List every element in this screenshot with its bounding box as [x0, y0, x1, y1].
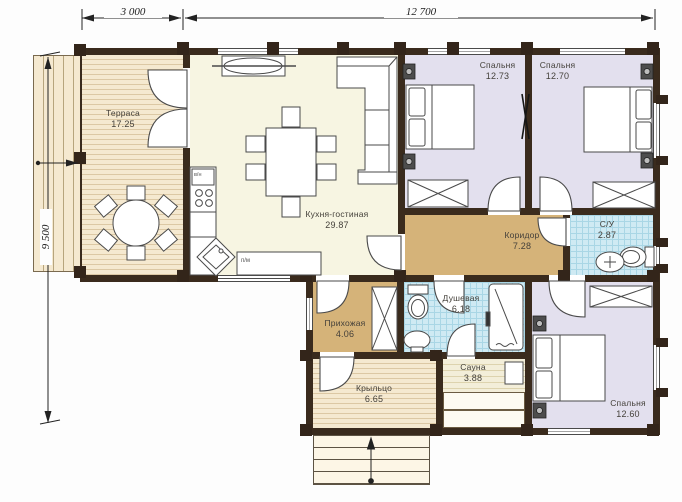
label-hallway: Прихожая4.06	[310, 318, 380, 341]
log-post	[521, 42, 533, 55]
window-bedroom2	[560, 48, 625, 55]
sauna-bench-lower	[443, 410, 525, 428]
log-post	[521, 424, 533, 436]
opening-wc-door	[563, 218, 570, 246]
log-post	[267, 42, 279, 55]
opening-hallway-door	[316, 275, 349, 282]
log-post	[177, 42, 189, 55]
log-post	[394, 42, 406, 55]
opening-sauna-door	[447, 352, 475, 359]
log-post	[74, 266, 86, 278]
floor-plan: 3 000 12 700 9 500 Терраса17.25 Кухня-го…	[0, 0, 682, 502]
log-post	[430, 424, 442, 436]
log-post	[647, 424, 659, 436]
log-post	[300, 270, 312, 282]
label-porch: Крыльцо6.65	[339, 383, 409, 406]
wall-shower-bedroom3	[525, 282, 532, 435]
dim-12700: 12 700	[384, 6, 458, 18]
log-post	[74, 44, 86, 56]
label-shower: Душевая6.18	[426, 293, 496, 316]
label-water-heater: в/н	[194, 172, 202, 178]
label-terrace: Терраса17.25	[92, 108, 154, 131]
dim-3000: 3 000	[104, 6, 162, 18]
label-kitchen: Кухня-гостиная29.87	[287, 209, 387, 232]
log-post	[177, 270, 189, 282]
log-end-nub	[656, 238, 668, 247]
label-sauna: Сауна3.88	[438, 362, 508, 385]
log-end-nub	[656, 264, 668, 273]
window-bedroom1	[428, 48, 490, 55]
log-end-nub	[656, 156, 668, 165]
log-end-nub	[656, 338, 668, 347]
label-bedroom3: Спальня12.60	[593, 398, 663, 421]
opening-bedroom1-door	[488, 208, 520, 215]
wall-hall-shower	[397, 282, 404, 359]
room-terrace	[82, 55, 183, 275]
log-post	[558, 270, 570, 282]
wall-bottom	[306, 428, 660, 435]
log-end-nub	[656, 388, 668, 397]
window-bedroom3-south	[548, 428, 590, 435]
sauna-bench-upper	[443, 392, 525, 410]
log-post	[447, 42, 459, 55]
opening-shower-door	[434, 275, 464, 282]
opening-porch-door	[320, 352, 354, 359]
dim-9500: 9 500	[40, 209, 52, 265]
log-post	[74, 152, 86, 164]
opening-french-door	[183, 68, 190, 148]
window-bedroom3-east	[653, 345, 660, 390]
log-post	[300, 424, 312, 436]
log-post	[430, 350, 442, 361]
label-wc: С/У2.87	[577, 219, 637, 242]
porch-steps	[313, 435, 430, 485]
window-kitchen-south	[218, 275, 290, 282]
opening-bedroom2-door	[540, 208, 572, 215]
label-dishwasher: п/м	[241, 258, 250, 264]
label-corridor: Коридор7.28	[482, 230, 562, 253]
label-bedroom2: Спальня12.70	[520, 60, 595, 83]
log-post	[394, 270, 406, 282]
wall-terrace-left	[80, 55, 82, 275]
room-kitchen-living	[190, 55, 398, 275]
log-post	[647, 42, 659, 55]
log-end-nub	[656, 95, 668, 104]
window-wc-east	[653, 246, 660, 266]
room-hallway	[313, 282, 397, 352]
log-post	[337, 42, 349, 55]
log-post	[300, 350, 312, 361]
window-bedroom2-east	[653, 103, 660, 158]
opening-kitchen-door	[398, 234, 405, 270]
window-kitchen-north	[218, 48, 298, 55]
